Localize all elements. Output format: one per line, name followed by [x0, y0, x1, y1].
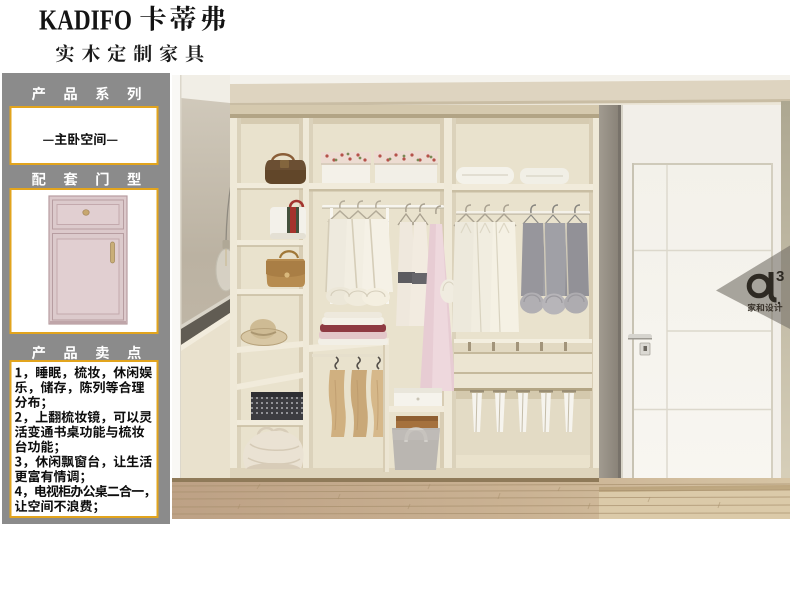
svg-text:KADIFO: KADIFO: [39, 5, 132, 37]
svg-text:3: 3: [776, 268, 784, 285]
